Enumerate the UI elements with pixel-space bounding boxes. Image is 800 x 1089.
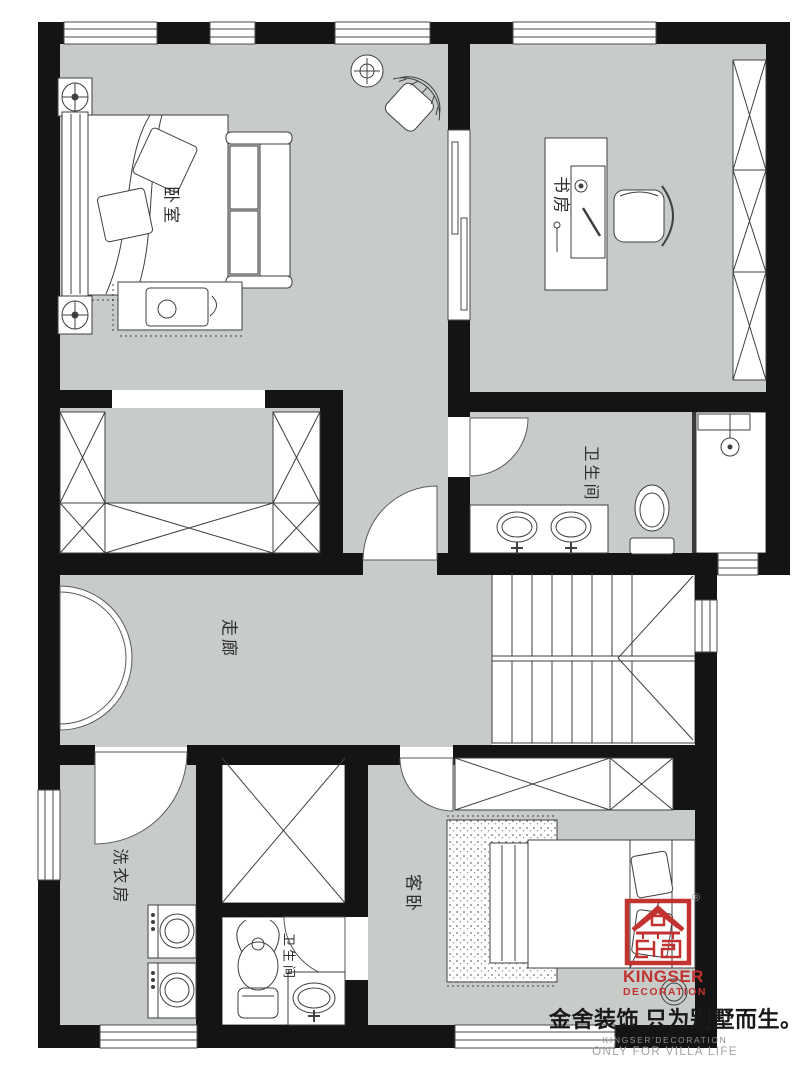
window-top-4 <box>513 22 656 44</box>
brand-slogan: 金舍装饰 只为别墅而生。 <box>549 1002 800 1034</box>
label-laundry: 洗衣房 <box>111 848 127 905</box>
label-corridor: 走廊 <box>221 619 238 659</box>
bookshelf <box>733 60 766 380</box>
label-bathroom-small: 卫生间 <box>283 933 296 981</box>
window-left-laundry <box>38 790 60 880</box>
watermark-line-1: KINGSER'DECORATION <box>600 1035 730 1045</box>
window-top-1 <box>64 22 157 44</box>
window-stairs-right <box>695 600 717 652</box>
window-top-2 <box>210 22 255 44</box>
round-table <box>351 55 383 87</box>
guest-wardrobe <box>455 758 673 810</box>
window-top-3 <box>335 22 430 44</box>
registered-mark: ® <box>692 892 700 904</box>
wardrobe-left <box>60 412 105 503</box>
small-sink <box>288 972 345 1025</box>
window-bath-bottom <box>718 553 758 575</box>
dresser <box>113 282 244 336</box>
label-study: 书房 <box>553 176 570 216</box>
sliding-door <box>448 130 470 320</box>
shower-room-floor <box>696 412 766 553</box>
window-laundry-bottom <box>100 1025 197 1048</box>
nightstand-top <box>58 78 92 116</box>
watermark-line-2: ONLY FOR VILLA LIFE <box>592 1046 738 1058</box>
wardrobe-right <box>273 412 320 503</box>
wardrobe-left-corner <box>60 503 105 553</box>
master-bed <box>62 112 230 300</box>
floor-plan-page: 卧室 书房 卫生间 走廊 洗衣房 卫生间 客卧 ® KINGSER DECORA… <box>0 0 800 1089</box>
label-bathroom-master: 卫生间 <box>582 445 598 502</box>
wardrobe-bottom <box>105 503 273 553</box>
logo-wordmark-sub: DECORATION <box>623 986 705 998</box>
logo-wordmark: KINGSER <box>623 967 701 987</box>
wardrobe-right-corner <box>273 503 320 553</box>
washing-machine-2 <box>148 963 196 1018</box>
floor-plan-drawing <box>0 0 800 1089</box>
label-guest-bedroom: 客卧 <box>405 874 422 914</box>
stairwell-floor <box>492 573 695 743</box>
label-bedroom: 卧室 <box>163 186 180 226</box>
nightstand-bottom <box>58 296 92 334</box>
washing-machine-1 <box>148 905 196 958</box>
